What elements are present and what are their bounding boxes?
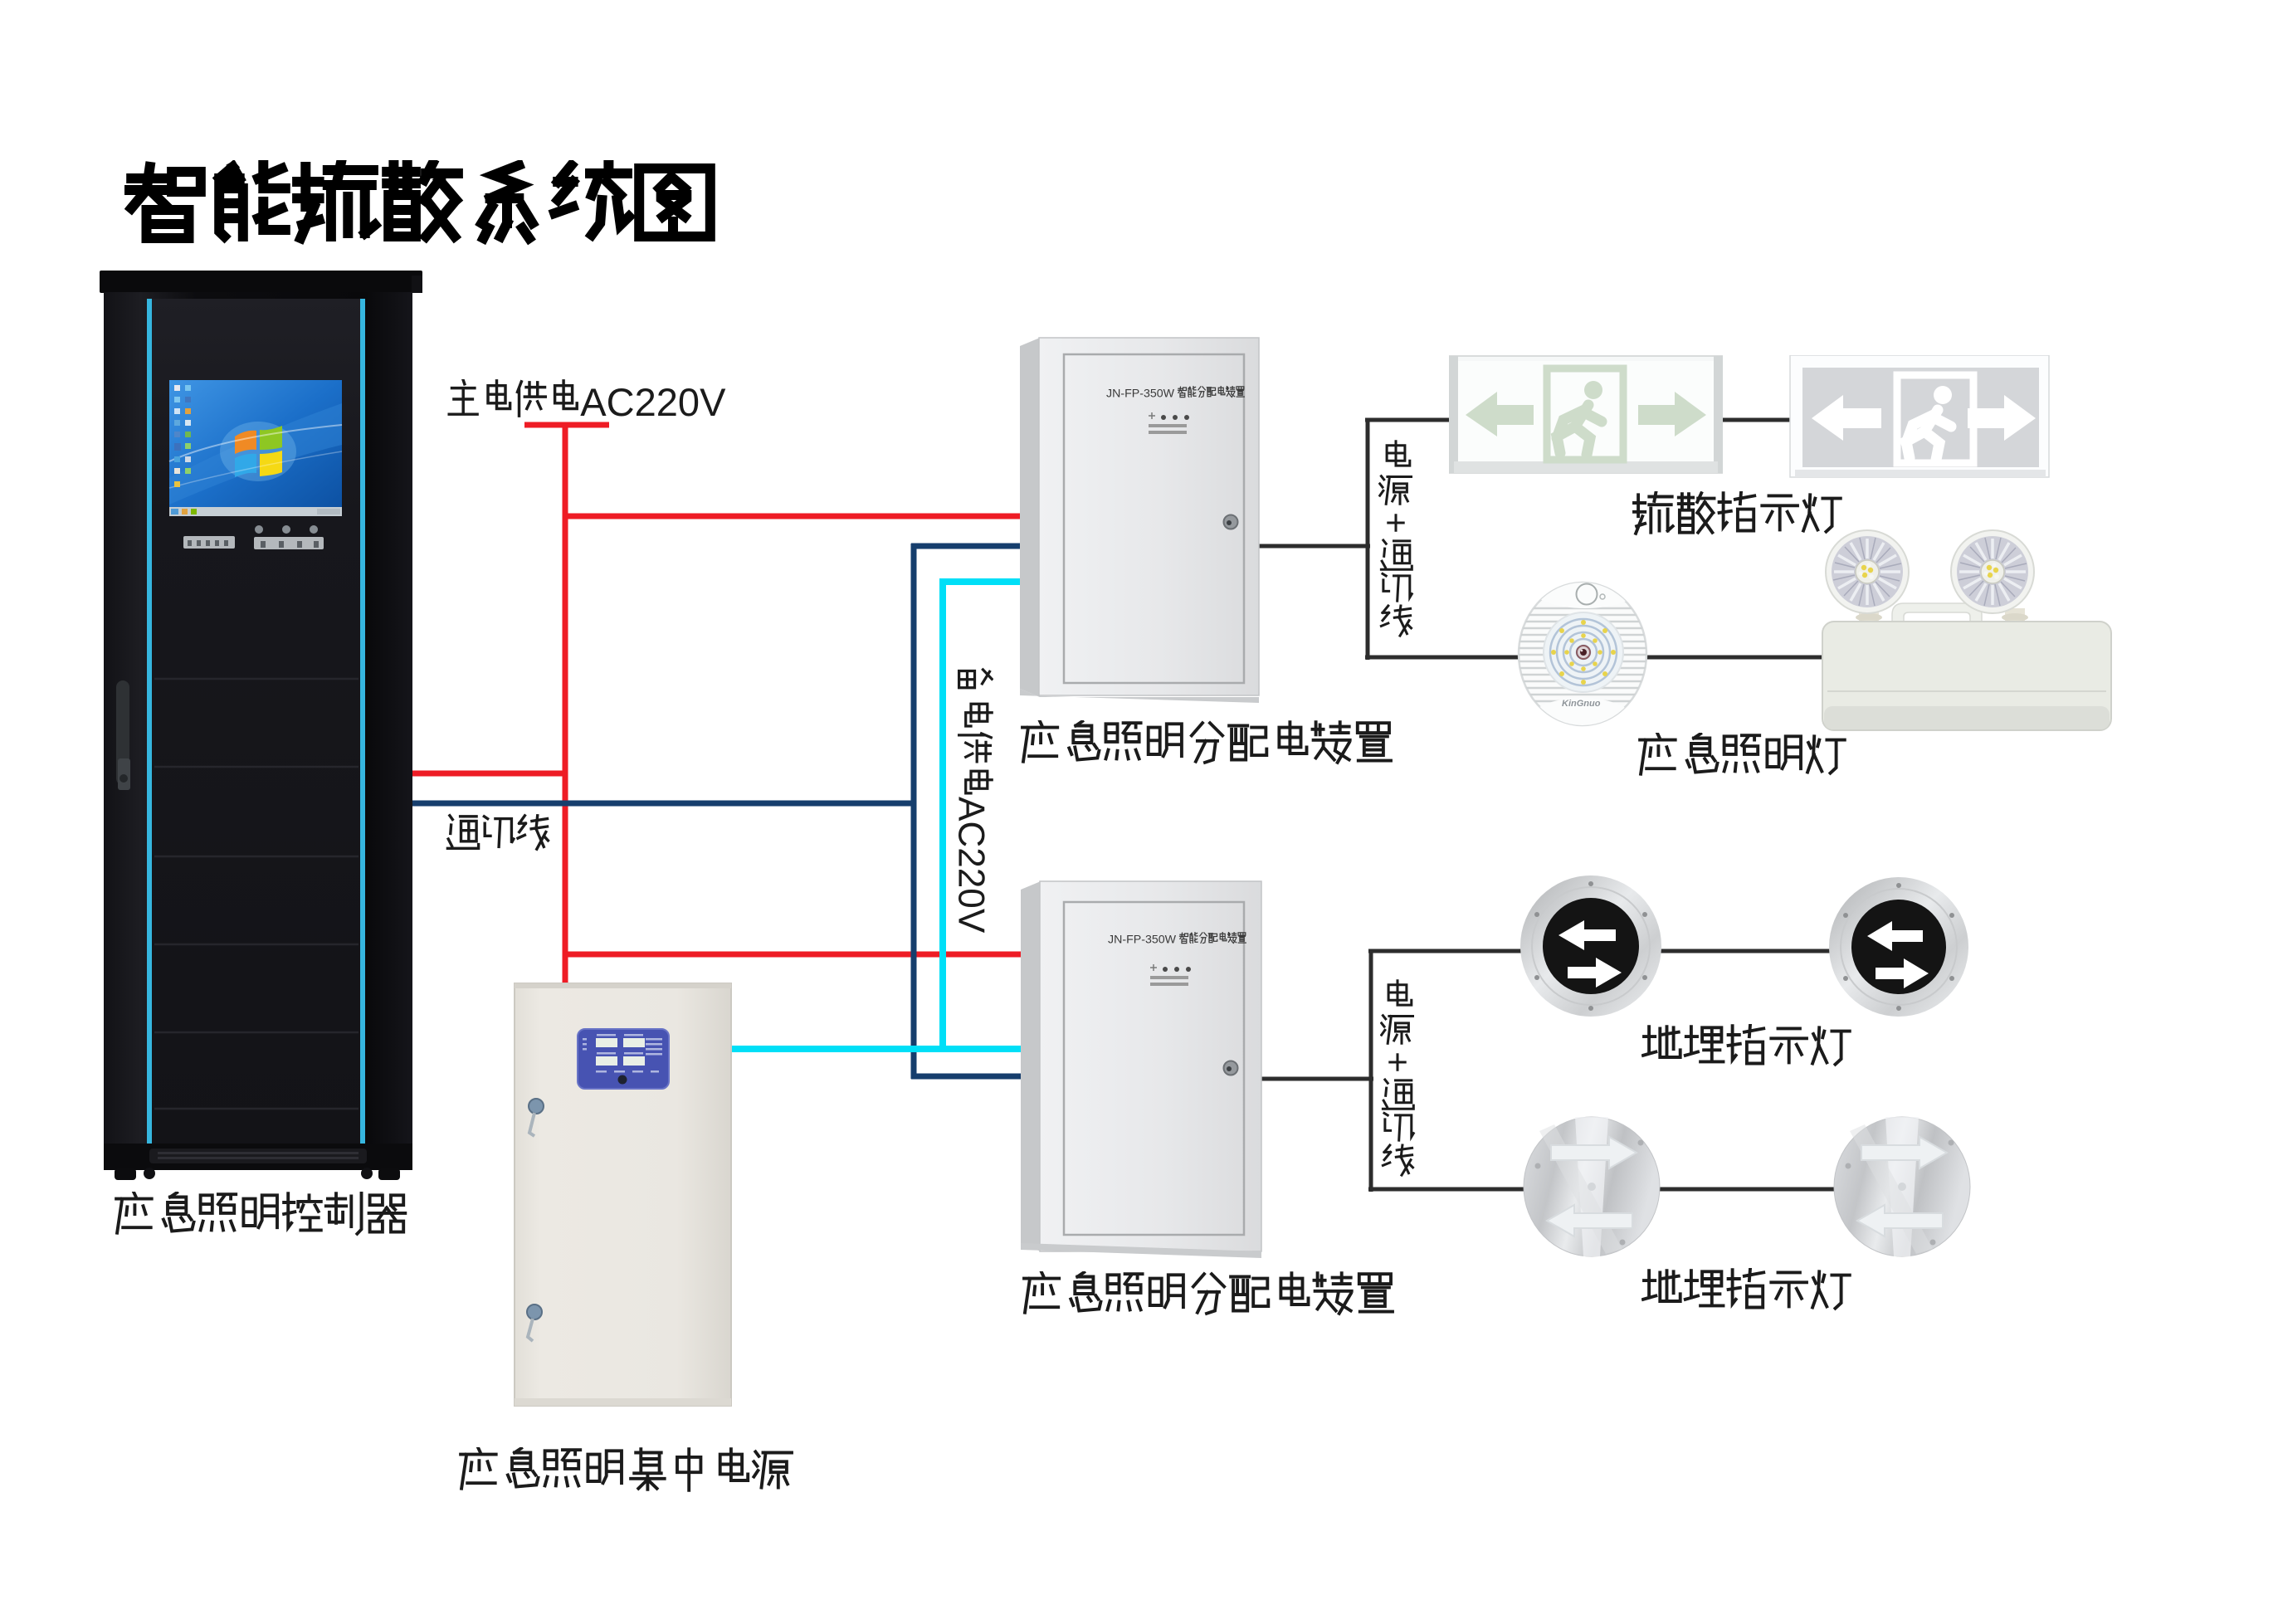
svg-text:AC220V: AC220V	[580, 380, 726, 422]
svg-text:JN-FP-350W: JN-FP-350W	[1108, 933, 1177, 945]
svg-text:AC220V: AC220V	[953, 797, 992, 934]
svg-text:KinGnuo: KinGnuo	[1562, 699, 1601, 709]
svg-text:JN-FP-350W: JN-FP-350W	[1106, 387, 1175, 399]
